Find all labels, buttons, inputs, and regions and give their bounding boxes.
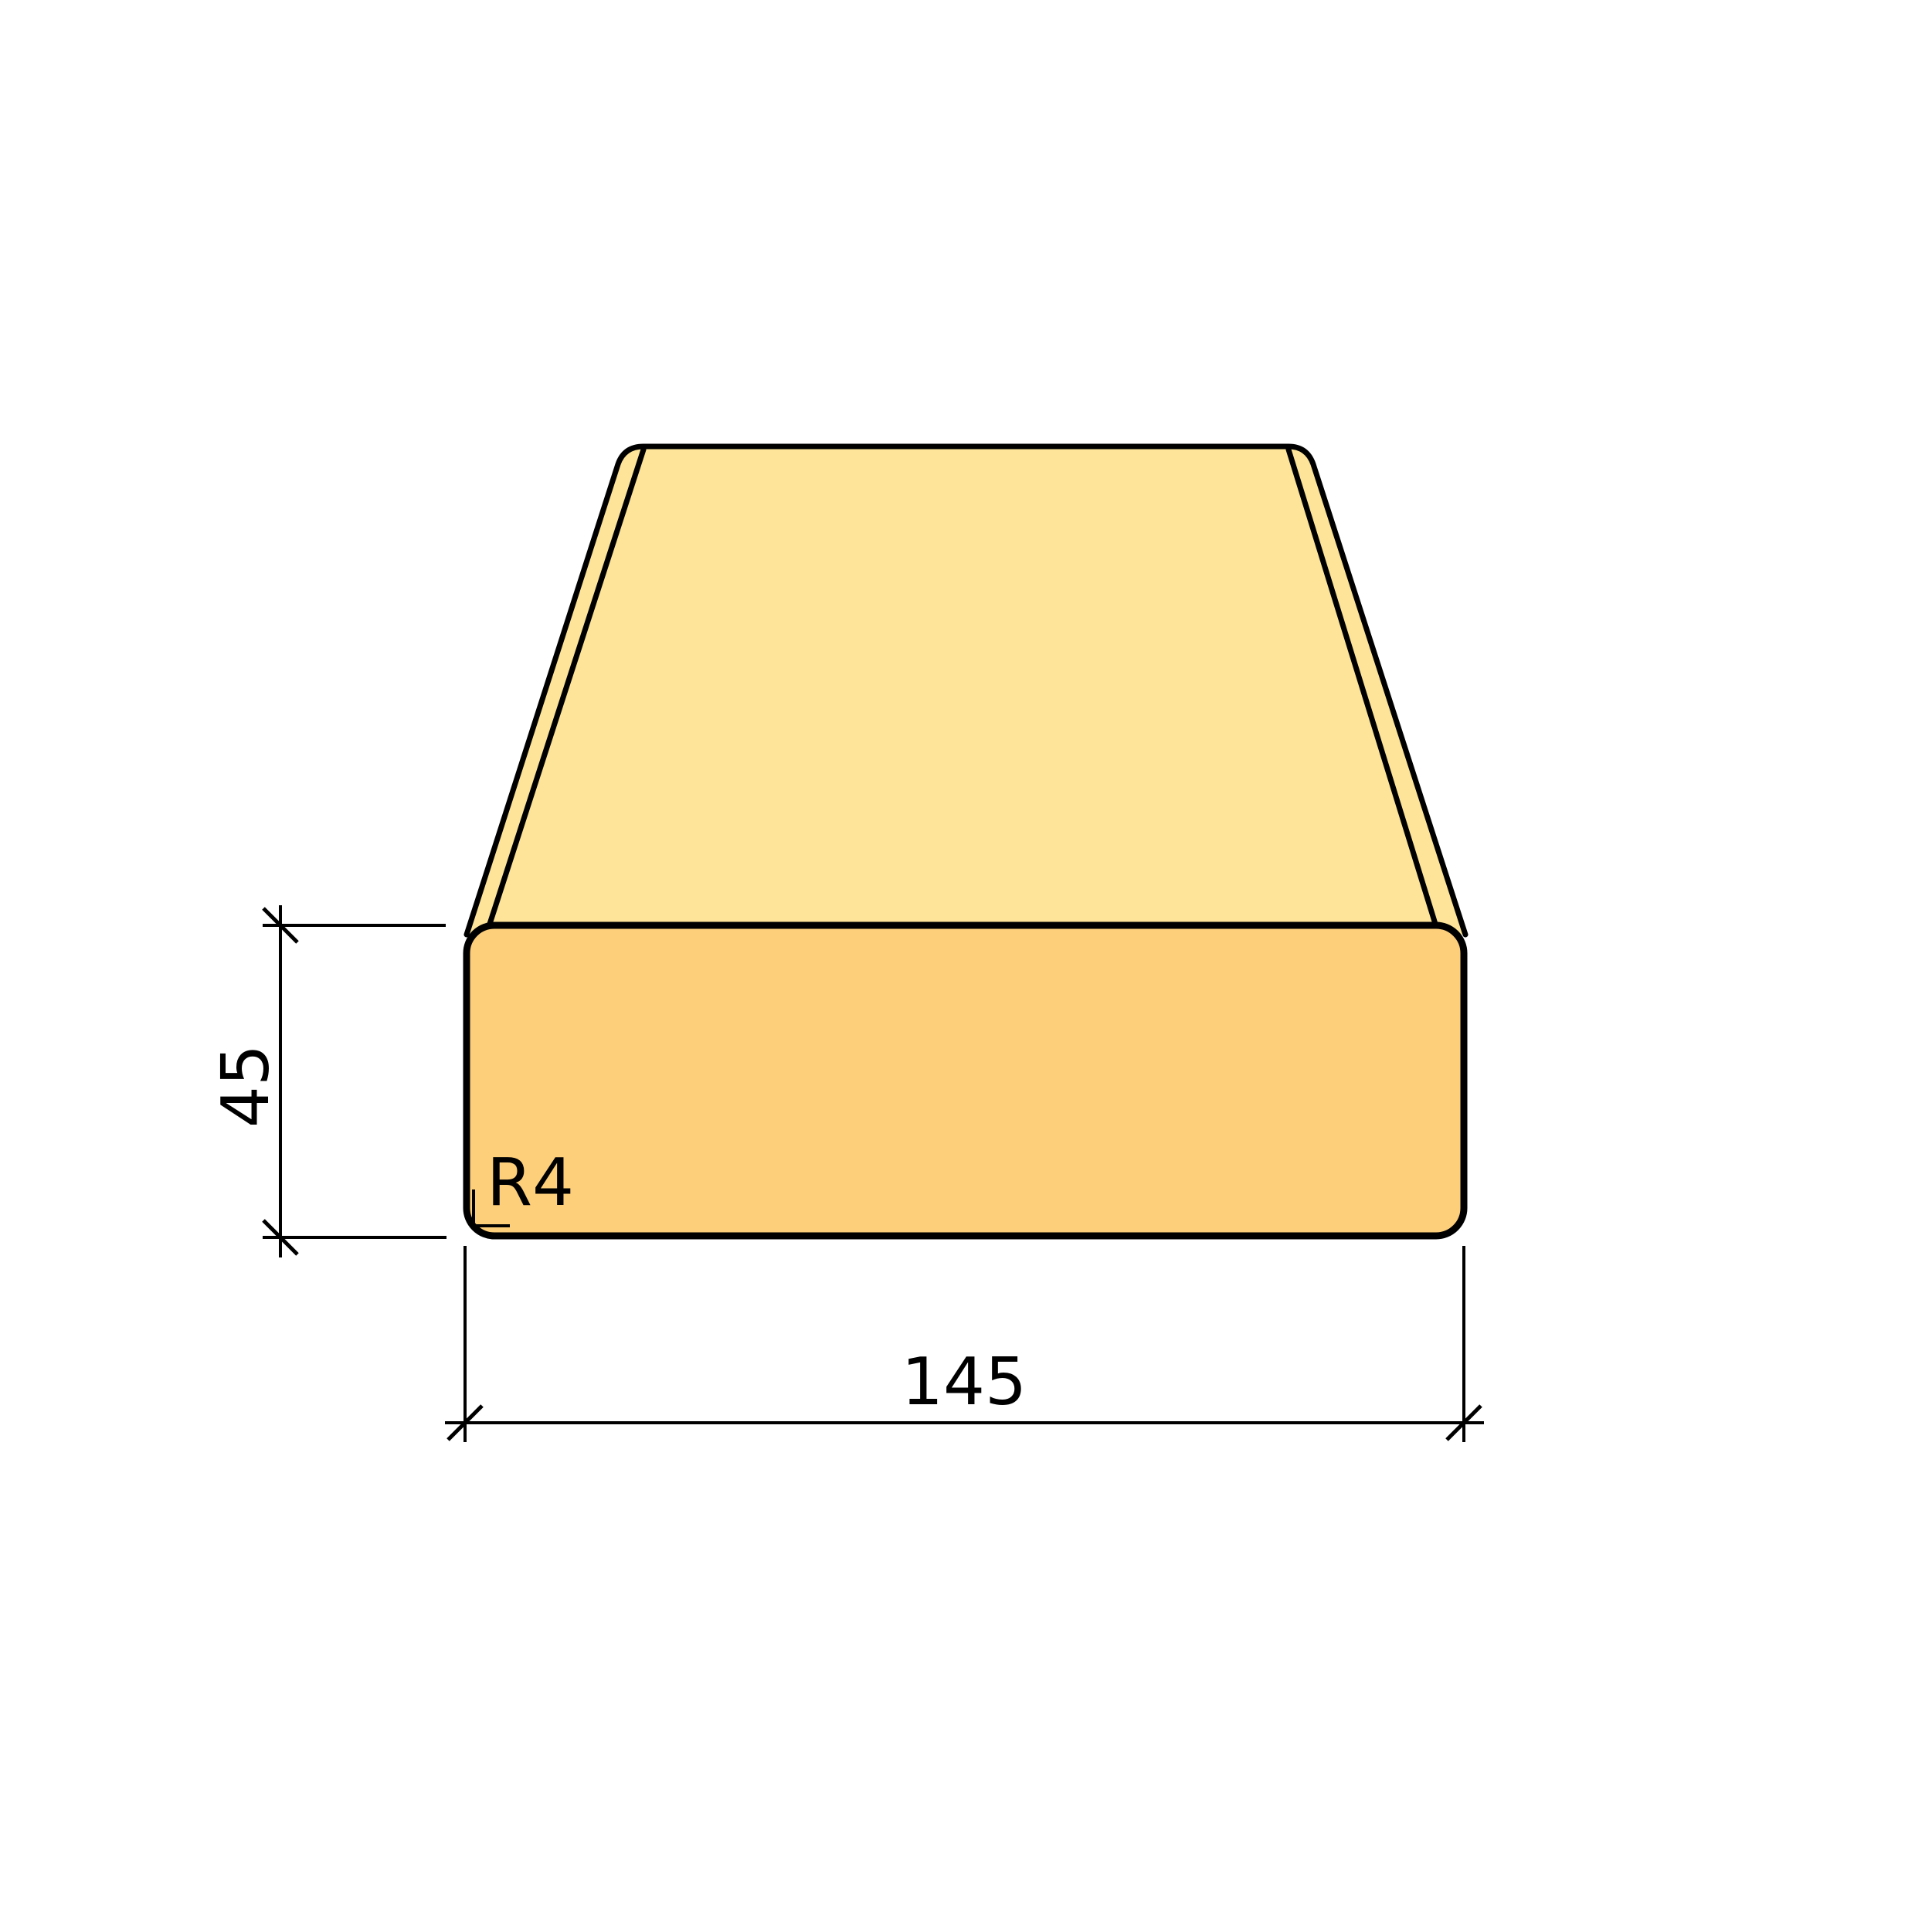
corner-radius-annotation: R4 xyxy=(474,1145,574,1226)
plank-top-surface xyxy=(467,446,1465,935)
corner-radius-label: R4 xyxy=(487,1145,574,1221)
drawing-canvas: 45 145 R4 xyxy=(0,0,1932,1931)
timber-profile-technical-drawing: 45 145 R4 xyxy=(0,0,1932,1931)
plank-top-surface-fill xyxy=(467,446,1465,935)
height-dimension: 45 xyxy=(208,905,446,1257)
width-dimension: 145 xyxy=(445,1246,1484,1442)
width-dimension-label: 145 xyxy=(901,1344,1027,1420)
height-dimension-label: 45 xyxy=(208,1044,284,1128)
plank-front-face xyxy=(467,925,1464,1236)
